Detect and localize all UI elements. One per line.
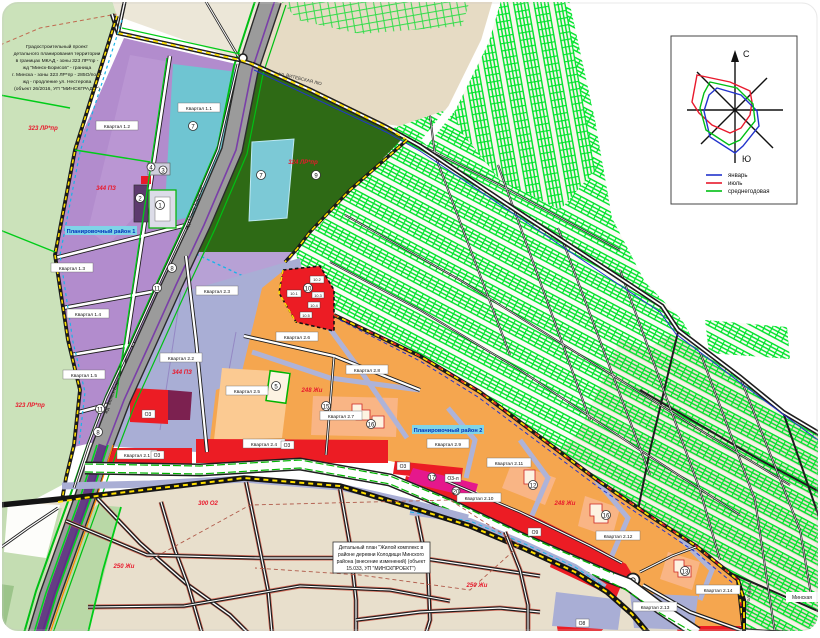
svg-text:О3: О3 (400, 464, 407, 470)
svg-text:июль: июль (728, 181, 742, 187)
svg-text:О3: О3 (154, 453, 161, 459)
svg-text:250 Жи: 250 Жи (113, 564, 135, 570)
svg-text:О3: О3 (145, 412, 152, 418)
svg-text:Градостроительный проект: Градостроительный проект (26, 43, 89, 50)
svg-text:16: 16 (368, 423, 375, 429)
svg-text:20: 20 (453, 490, 460, 496)
svg-text:Квартал 1.1: Квартал 1.1 (186, 106, 212, 112)
svg-text:Квартал 1.3: Квартал 1.3 (59, 266, 85, 272)
svg-text:10.2: 10.2 (313, 278, 320, 282)
svg-text:344 ПЗ: 344 ПЗ (172, 370, 192, 376)
svg-text:С: С (743, 49, 750, 59)
svg-text:10.4: 10.4 (310, 304, 317, 308)
svg-text:Квартал 2.1: Квартал 2.1 (124, 453, 150, 459)
svg-text:10.3: 10.3 (314, 294, 321, 298)
svg-text:Квартал 2.2: Квартал 2.2 (168, 356, 194, 362)
svg-text:300 О2: 300 О2 (198, 501, 218, 507)
svg-text:Квартал 2.7: Квартал 2.7 (328, 414, 354, 420)
svg-text:248 Жи: 248 Жи (554, 501, 576, 507)
svg-text:10: 10 (305, 287, 312, 293)
svg-text:О8: О8 (579, 621, 586, 627)
svg-text:Квартал 1.5: Квартал 1.5 (71, 373, 97, 379)
svg-text:16: 16 (603, 514, 610, 520)
svg-text:Квартал 1.2: Квартал 1.2 (104, 124, 130, 130)
svg-text:Квартал 2.6: Квартал 2.6 (284, 335, 310, 341)
svg-text:Планировочный район 1: Планировочный район 1 (67, 228, 136, 235)
svg-text:Минская: Минская (792, 595, 812, 601)
svg-text:15: 15 (323, 405, 330, 411)
svg-text:344 ПЗ: 344 ПЗ (96, 186, 116, 192)
svg-text:жд - продление ул. Нестерова: жд - продление ул. Нестерова (23, 79, 92, 85)
svg-text:Квартал 1.4: Квартал 1.4 (75, 312, 101, 318)
svg-text:Квартал 2.11: Квартал 2.11 (495, 461, 524, 467)
svg-text:детального планирования террит: детального планирования территории (14, 52, 101, 57)
svg-text:г. Минска - зоны 323 ЛР*пр - 2: г. Минска - зоны 323 ЛР*пр - 285О/пол - (12, 72, 102, 78)
svg-text:11: 11 (154, 287, 161, 293)
svg-text:17: 17 (429, 476, 436, 482)
svg-text:Квартал 2.4: Квартал 2.4 (251, 442, 277, 448)
svg-text:районе деревни Колодищи Минско: районе деревни Колодищи Минского (338, 551, 424, 558)
svg-text:январь: январь (728, 173, 747, 179)
svg-text:О3: О3 (284, 443, 291, 449)
svg-text:250 Жи: 250 Жи (466, 583, 488, 589)
svg-text:Квартал 2.12: Квартал 2.12 (604, 534, 633, 540)
svg-text:Планировочный район 2: Планировочный район 2 (414, 427, 483, 434)
svg-text:10.1: 10.1 (290, 292, 297, 296)
svg-text:13: 13 (682, 570, 689, 576)
svg-text:15.033, УП "МИНСКПРОЕКТ"): 15.033, УП "МИНСКПРОЕКТ") (346, 566, 416, 572)
svg-text:Квартал 2.5: Квартал 2.5 (234, 389, 260, 395)
svg-text:О3-л: О3-л (447, 476, 458, 482)
svg-text:Детальный план "Жилой комплек: Детальный план "Жилой комплекс в (339, 544, 424, 551)
svg-text:О9: О9 (532, 530, 539, 536)
svg-text:323 ЛР*пр: 323 ЛР*пр (15, 403, 45, 409)
svg-text:Квартал 2.13: Квартал 2.13 (641, 605, 670, 611)
svg-text:среднегодовая: среднегодовая (728, 189, 770, 195)
svg-text:248 Жи: 248 Жи (301, 388, 323, 394)
svg-text:(объект 26/2016, УП "МИНСКГРАД: (объект 26/2016, УП "МИНСКГРАДО") (14, 86, 100, 92)
svg-text:Квартал 2.8: Квартал 2.8 (354, 368, 380, 374)
svg-text:Квартал 2.9: Квартал 2.9 (435, 442, 461, 448)
svg-text:жд "Минск-Борисов" - граница: жд "Минск-Борисов" - граница (23, 65, 92, 71)
svg-text:Квартал 2.10: Квартал 2.10 (465, 496, 494, 502)
svg-text:10.5: 10.5 (302, 314, 309, 318)
svg-text:района (внесение изменений) (о: района (внесение изменений) (объект (337, 558, 426, 565)
svg-text:в границах МКАД - зоны 323 ЛР*: в границах МКАД - зоны 323 ЛР*пр - (16, 58, 99, 64)
svg-text:324 ЛР*пр: 324 ЛР*пр (288, 160, 318, 166)
svg-text:Квартал 2.3: Квартал 2.3 (204, 289, 230, 295)
svg-text:323 ЛР*пр: 323 ЛР*пр (28, 126, 58, 132)
svg-text:12: 12 (530, 484, 537, 490)
svg-text:Ю: Ю (742, 154, 751, 164)
svg-text:Квартал 2.14: Квартал 2.14 (704, 588, 733, 594)
